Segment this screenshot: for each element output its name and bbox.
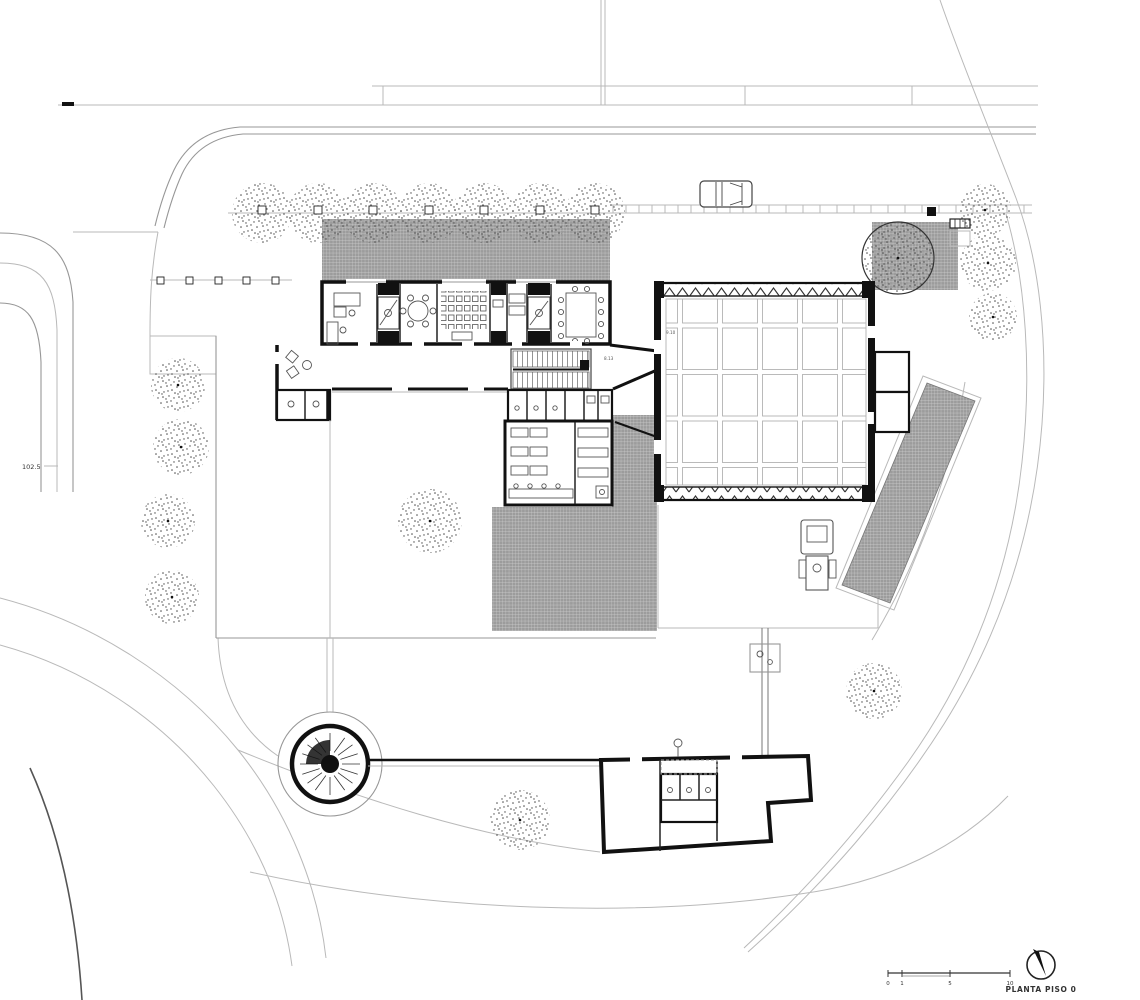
level-label: 102.5: [22, 463, 41, 471]
wc-block: [508, 390, 612, 421]
tree-icon: [141, 494, 195, 548]
tree-icon: [151, 358, 205, 412]
hall-annex-room: [875, 392, 909, 432]
flag-pole-icon: [674, 739, 682, 747]
entrance-door: [274, 352, 281, 364]
pavilion-wc: [661, 774, 717, 822]
post-icon: [927, 207, 936, 216]
entrance-lobby: [274, 345, 330, 420]
north-wing-offices: [322, 279, 610, 347]
kitchen-counters: [578, 428, 608, 498]
plan-title: PLANTA PISO 0: [1005, 985, 1076, 994]
tree-icon: [153, 419, 209, 475]
hall-annex-room: [875, 352, 909, 392]
tree-icon: [969, 293, 1017, 341]
dim-label: 8.13: [604, 356, 614, 361]
tree-icon: [960, 235, 1016, 291]
dining-tables: [509, 428, 573, 498]
spiral-stair: [278, 712, 382, 816]
tree-icon: [959, 184, 1011, 236]
south-pavilion: [601, 739, 811, 852]
tree-icon: [398, 489, 462, 553]
scale-tick: 5: [948, 981, 952, 987]
door-opening: [769, 775, 775, 787]
lobby-seating: [286, 350, 312, 378]
tractor-icon: [799, 520, 836, 590]
tree-icon: [145, 570, 199, 624]
tree-icon: [846, 663, 902, 719]
paved-area-northeast: [862, 207, 970, 294]
floor-plan-drawing: 9.10 8.13: [0, 0, 1140, 1000]
scale-tick: 0: [886, 981, 890, 987]
door-opening: [730, 754, 742, 761]
roof-truss: [662, 283, 868, 296]
great-hall: [654, 281, 909, 502]
utility-box: [750, 644, 780, 672]
scale-bar: 0 1 5 10: [886, 970, 1014, 987]
hall-west-wall: [654, 297, 661, 487]
car-icon: [700, 181, 752, 207]
scale-tick: 1: [900, 981, 904, 987]
main-stair: [511, 349, 591, 389]
north-arrow: [1027, 949, 1055, 979]
door-opening: [630, 756, 642, 763]
tree-icon: [490, 790, 550, 850]
left-road: [0, 232, 292, 492]
roof-truss: [662, 487, 868, 500]
scale-tick: 10: [1007, 981, 1014, 987]
road-marker: [62, 102, 74, 106]
